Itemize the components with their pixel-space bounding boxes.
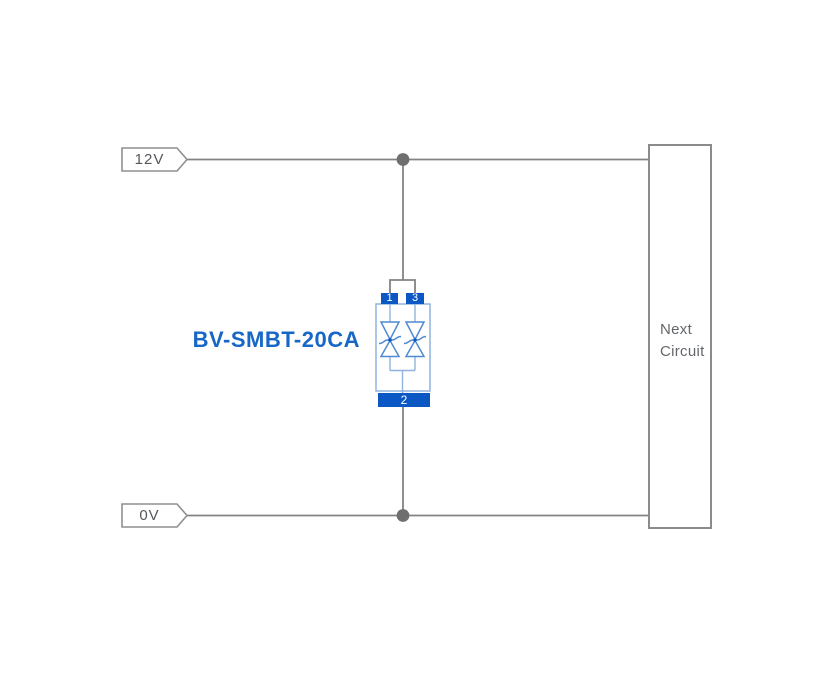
component-name-label: BV-SMBT-20CA — [160, 327, 360, 353]
junction-dot-top — [397, 153, 410, 166]
supply-net-label: 12V — [122, 148, 177, 171]
pin-1-label: 1 — [381, 293, 398, 304]
ground-net-label: 0V — [122, 504, 177, 527]
pin-2-label: 2 — [378, 393, 430, 407]
junction-dot-bottom — [397, 509, 410, 522]
pin-3-label: 3 — [406, 293, 424, 304]
circuit-diagram: 12V 0V BV-SMBT-20CA 1 3 2 Next Circuit — [0, 0, 832, 675]
next-circuit-label: Next Circuit — [660, 319, 708, 363]
